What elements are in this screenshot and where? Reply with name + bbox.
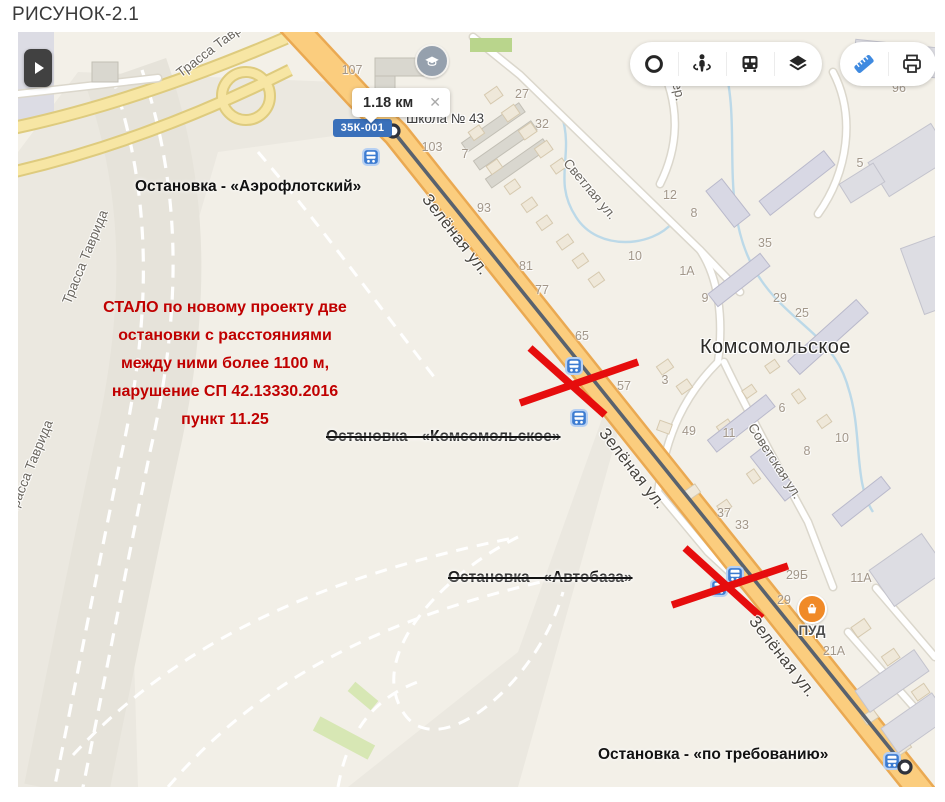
sidebar-toggle-button[interactable] — [24, 49, 52, 87]
print-button[interactable] — [888, 42, 935, 86]
ruler-tool-button[interactable] — [840, 42, 888, 86]
bus-stop-icon[interactable] — [566, 358, 582, 374]
map-toolbar — [630, 42, 822, 86]
store-poi-icon[interactable] — [797, 594, 827, 624]
school-poi-icon[interactable] — [415, 44, 449, 78]
stop-label-avtobaza: Остановка - «Автобаза» — [448, 569, 633, 587]
layers-icon — [786, 52, 810, 76]
measure-end-point[interactable] — [899, 761, 911, 773]
store-label: ПУД — [798, 623, 825, 638]
stop-label-aeroflotsky: Остановка - «Аэрофлотский» — [135, 178, 361, 196]
basket-icon — [804, 601, 820, 617]
panorama-person-icon — [690, 52, 714, 76]
figure-page: РИСУНОК-2.1 — [0, 0, 945, 802]
figure-title: РИСУНОК-2.1 — [12, 4, 139, 26]
measure-distance-badge: 1.18 км ✕ — [352, 88, 450, 117]
bus-stop-icon[interactable] — [571, 410, 587, 426]
bus-icon — [738, 52, 762, 76]
map-tools — [840, 42, 935, 86]
graduation-cap-icon — [423, 52, 441, 70]
play-icon — [35, 62, 44, 74]
ring-tool-button[interactable] — [630, 42, 678, 86]
stop-label-on-demand: Остановка - «по требованию» — [598, 746, 828, 764]
ring-icon — [642, 52, 666, 76]
measure-distance-value: 1.18 км — [363, 95, 413, 111]
bus-stop-icon[interactable] — [363, 149, 379, 165]
transit-tool-button[interactable] — [726, 42, 774, 86]
layers-tool-button[interactable] — [774, 42, 822, 86]
violation-note: СТАЛО по новому проекту две остановки с … — [80, 294, 370, 434]
ruler-icon — [850, 50, 878, 78]
close-icon[interactable]: ✕ — [429, 94, 441, 111]
district-label: Комсомольское — [700, 336, 851, 359]
map-canvas[interactable]: Зелёная ул.Зелёная ул.Зелёная ул.Трасса … — [18, 32, 935, 787]
panorama-tool-button[interactable] — [678, 42, 726, 86]
printer-icon — [900, 52, 924, 76]
road-number-badge: 35К-001 — [333, 119, 392, 137]
